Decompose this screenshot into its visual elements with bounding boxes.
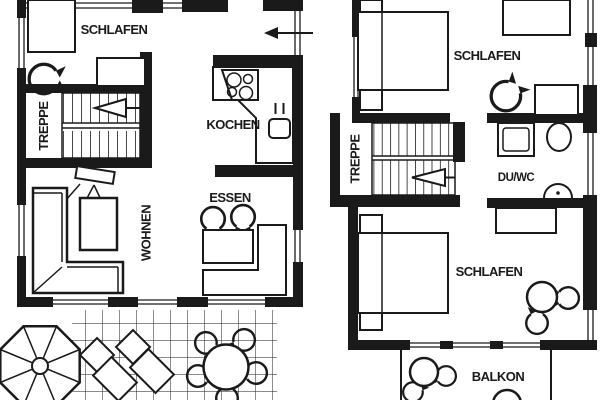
round-table-icon [493,390,521,400]
room-label-schlafen-ground: SCHLAFEN [81,22,148,37]
room-label-kochen: KOCHEN [206,117,259,132]
shower-icon [498,123,534,156]
round-table-icon [204,345,249,390]
room-label-essen: ESSEN [209,190,251,205]
room-schlafen-top: SCHLAFEN [358,0,578,117]
room-label-schlafen-top: SCHLAFEN [454,48,521,63]
room-schlafen-ground: SCHLAFEN [28,0,147,94]
upper-floor-plan: SCHLAFEN TREPPE DU/WC [330,0,597,350]
room-label-balkon: BALKON [472,369,525,384]
bed-icon [358,12,448,90]
staircase-ground: TREPPE [36,93,140,158]
floor-plan-drawing: SCHLAFEN TREPPE KOCHEN [0,0,600,400]
dresser-icon [535,85,578,115]
staircase-upper: TREPPE [348,123,456,195]
wardrobe-icon [97,58,145,86]
wardrobe-icon [496,208,556,233]
room-label-wohnen: WOHNEN [139,205,154,261]
nightstand-icon [360,90,382,110]
terrace [0,310,277,400]
room-label-du-wc: DU/WC [498,172,535,184]
floor-plan-page: SCHLAFEN TREPPE KOCHEN [0,0,600,400]
balcony: BALKON [399,350,551,400]
room-du-wc: DU/WC [498,123,572,198]
room-essen: ESSEN [201,190,286,295]
wardrobe-icon [503,0,570,35]
nightstand-icon [360,0,382,12]
room-label-schlafen-bottom: SCHLAFEN [456,264,523,279]
room-wohnen: WOHNEN [33,166,154,293]
room-label-treppe-upper: TREPPE [348,134,363,184]
entrance-arrow [264,27,313,39]
washbasin-icon [547,123,571,151]
bed-icon [358,233,448,313]
coffee-table-icon [80,198,117,250]
round-table-icon [527,282,557,312]
nightstand-icon [360,215,382,233]
toilet-icon [544,184,572,198]
dining-table-icon [203,230,253,263]
tv-icon [66,166,115,202]
nightstand-icon [360,313,382,330]
door-swing-icon [485,70,532,117]
round-table-icon [410,358,438,386]
room-schlafen-bottom: SCHLAFEN [358,208,579,334]
parasol-icon [0,326,79,400]
ground-floor-plan: SCHLAFEN TREPPE KOCHEN [17,0,303,307]
room-kochen: KOCHEN [206,67,293,163]
bed-icon [28,0,75,52]
room-label-treppe-ground: TREPPE [36,101,51,151]
